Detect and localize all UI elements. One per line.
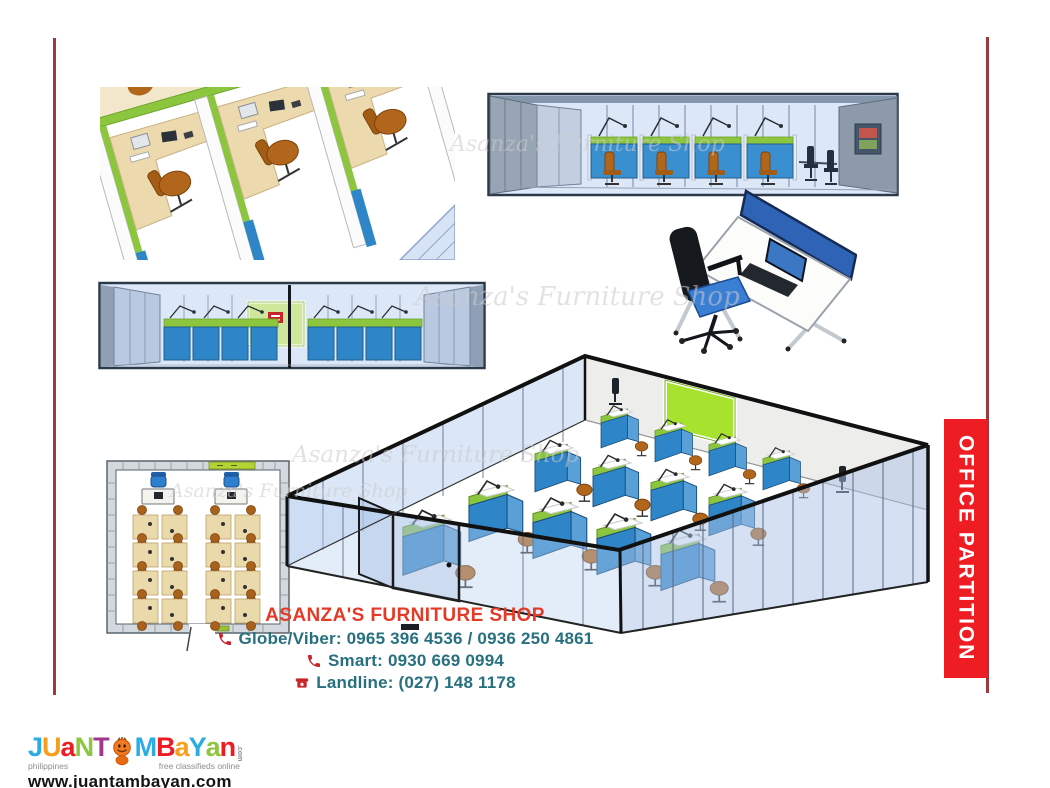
juantambayan-logo: J U a N T M B a Y a n .com phili <box>28 729 268 788</box>
office-partition-banner: OFFICE PARTITION <box>944 419 987 678</box>
shop-name: ASANZA'S FURNITURE SHOP <box>265 605 545 627</box>
brand-wordmark: J U a N T M B a Y a n .com <box>28 729 268 761</box>
brand-letter: n <box>220 733 236 761</box>
contact-line-text: Globe/Viber: 0965 396 4536 / 0936 250 48… <box>239 628 594 649</box>
brand-letter: M <box>135 733 157 761</box>
contact-line-landline: Landline: (027) 148 1178 <box>294 672 515 693</box>
brand-letter: J <box>28 733 42 761</box>
brand-letter: Y <box>189 733 206 761</box>
tagline-philippines: philippines <box>28 761 68 771</box>
site-url: www.juantambayan.com <box>28 772 268 788</box>
brand-letter: T <box>93 733 109 761</box>
render-single-workstation <box>652 183 857 355</box>
contact-line-smart: Smart: 0930 669 0994 <box>306 650 504 671</box>
render-office-perspective <box>283 350 933 635</box>
brand-letter: a <box>175 733 189 761</box>
ad-canvas: OFFICE PARTITION <box>0 0 1050 788</box>
phone-handset-icon <box>306 653 322 669</box>
contact-block: ASANZA'S FURNITURE SHOP Globe/Viber: 096… <box>175 605 635 693</box>
glass-door-frame <box>393 513 459 601</box>
brand-letter: N <box>75 733 94 761</box>
juantambayan-mascot-icon <box>110 737 134 767</box>
contact-line-text: Landline: (027) 148 1178 <box>316 672 515 693</box>
phone-handset-icon <box>217 631 233 647</box>
banner-label: OFFICE PARTITION <box>954 435 978 661</box>
brand-taglines: philippines free classifieds online <box>28 761 240 771</box>
brand-dotcom-suffix: .com <box>236 745 243 761</box>
render-aerial-cubicles <box>100 87 455 260</box>
contact-line-text: Smart: 0930 669 0994 <box>328 650 504 671</box>
brand-letter: a <box>206 733 220 761</box>
contact-line-globe-viber: Globe/Viber: 0965 396 4536 / 0936 250 48… <box>217 628 594 649</box>
left-accent-line <box>53 38 56 695</box>
landline-phone-icon <box>294 675 310 691</box>
brand-letter: B <box>156 733 175 761</box>
tagline-free-classifieds: free classifieds online <box>159 761 240 771</box>
brand-letter: U <box>42 733 61 761</box>
brand-letter: a <box>61 733 75 761</box>
